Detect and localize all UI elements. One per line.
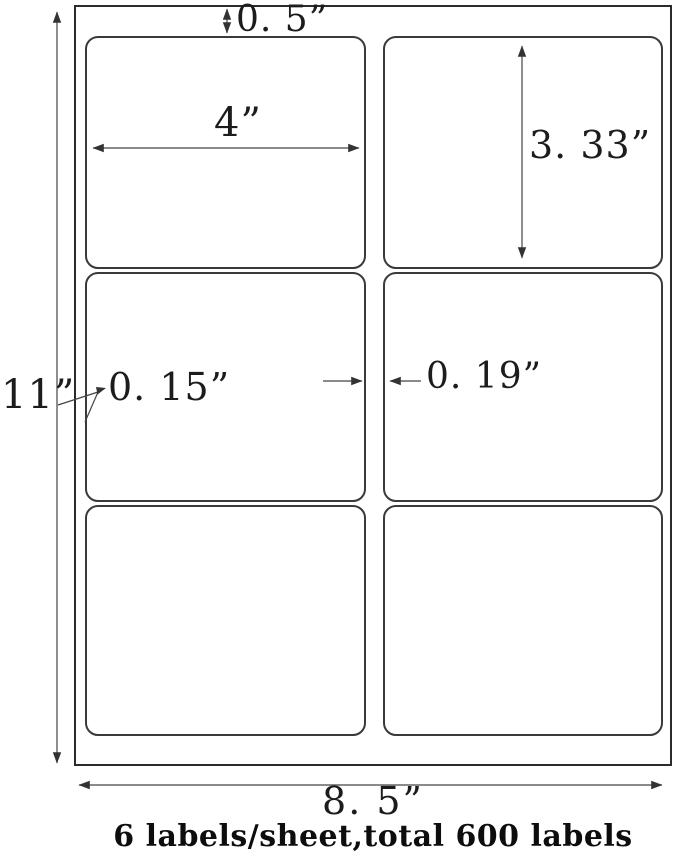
sheet-height-label: 11” [1,375,75,415]
top-margin-label: 0. 5” [236,2,328,38]
label-sheet-diagram: 0. 5” 4” 3. 33” 0. 15” 0. 19” 11” 8. 5” … [0,0,679,860]
sheet-caption: 6 labels/sheet,total 600 labels [74,819,672,854]
label-width-label: 4” [214,103,262,143]
label-height-label: 3. 33” [529,126,651,164]
label-cell-r1c1 [85,36,366,269]
sheet-width-label: 8. 5” [74,782,672,820]
label-cell-r3c1 [85,505,366,736]
column-gap-label: 0. 19” [426,359,542,395]
label-cell-r3c2 [383,505,663,736]
side-margin-label: 0. 15” [108,368,230,406]
